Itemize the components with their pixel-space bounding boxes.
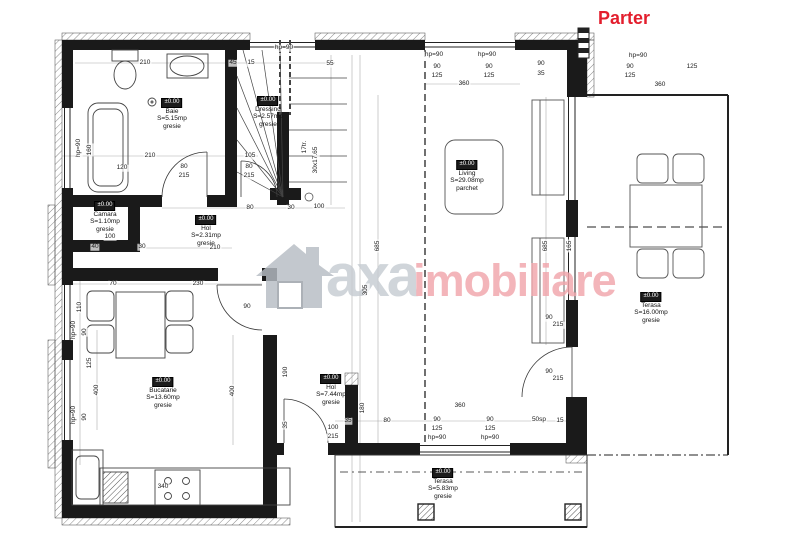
dimension-label: 45 <box>228 60 237 67</box>
dimension-label: 15 <box>246 60 255 67</box>
terrace-east <box>587 95 728 455</box>
dimension-label: 210 <box>209 245 222 252</box>
dimension-label: 90 <box>82 327 89 336</box>
dimension-label: 400 <box>230 385 237 398</box>
dimension-label: 125 <box>686 64 699 71</box>
dimension-label: 160 <box>87 144 94 157</box>
dimension-label: 100 <box>104 234 117 241</box>
dimension-label: hp=90 <box>477 52 497 59</box>
dimension-label: 215 <box>178 173 191 180</box>
dimension-label: 17tr. <box>302 140 309 155</box>
dimension-label: 90 <box>432 417 441 424</box>
dimension-label: 40 <box>90 244 99 251</box>
dimension-label: 215 <box>327 434 340 441</box>
level-badge: ±0.00 <box>196 215 217 225</box>
room-area: S=13.60mp <box>146 394 179 401</box>
room-area: S=2.57mp <box>253 113 283 120</box>
dimension-label: 360 <box>454 403 467 410</box>
dimension-label: hp=90 <box>76 138 83 158</box>
dimension-label: 80 <box>179 164 188 171</box>
dimension-label: 35 <box>536 71 545 78</box>
dimension-label: 90 <box>432 64 441 71</box>
bathroom-fixtures <box>88 50 208 192</box>
dimension-label: 90 <box>625 64 634 71</box>
floor-plan-page: axa imobiliare ±0.00 Baie S=5.15mp gresi… <box>0 0 800 546</box>
room-name: Living <box>459 170 476 177</box>
dimension-label: 35 <box>343 418 352 425</box>
room-finish: gresie <box>259 121 277 128</box>
dimension-label: hp=90 <box>274 45 294 52</box>
room-label-living: ±0.00 Living S=29.08mp parchet <box>450 160 483 192</box>
dimension-label: 125 <box>431 73 444 80</box>
dimension-label: 90 <box>485 417 494 424</box>
room-name: Terasa <box>433 478 453 485</box>
room-area: S=5.15mp <box>157 115 187 122</box>
floorplan-drawing <box>0 0 800 546</box>
room-area: S=2.31mp <box>191 232 221 239</box>
room-finish: gresie <box>163 123 181 130</box>
dimension-label: 360 <box>458 81 471 88</box>
dimension-label: 230 <box>192 281 205 288</box>
dimension-label: 215 <box>552 376 565 383</box>
dimension-label: 80 <box>382 418 391 425</box>
dimension-label: hp=90 <box>71 405 78 425</box>
dimension-label: 215 <box>243 173 256 180</box>
room-area: S=16.00mp <box>634 309 667 316</box>
scale-bar-icon <box>578 28 589 58</box>
room-finish: parchet <box>456 185 478 192</box>
level-badge: ±0.00 <box>457 160 478 170</box>
dimension-label: 125 <box>431 426 444 433</box>
dimension-label: 35 <box>283 420 290 429</box>
level-badge: ±0.00 <box>321 374 342 384</box>
dimension-label: 80 <box>245 205 254 212</box>
dimension-label: 55 <box>325 61 334 68</box>
room-label-camara: ±0.00 Camara S=1.10mp gresie <box>90 201 120 233</box>
level-badge: ±0.00 <box>258 96 279 106</box>
level-badge: ±0.00 <box>153 377 174 387</box>
dimension-label: 685 <box>375 240 382 253</box>
room-finish: gresie <box>322 399 340 406</box>
dimension-label: 215 <box>552 322 565 329</box>
dimension-label: hp=90 <box>424 52 444 59</box>
dimension-label: 110 <box>77 301 84 313</box>
room-label-hol: ±0.00 Hol S=7.44mp gresie <box>316 374 346 406</box>
room-finish: gresie <box>154 402 172 409</box>
dimension-label: 685 <box>543 240 550 253</box>
dimension-label: 360 <box>654 82 667 89</box>
room-name: Hol <box>326 384 336 391</box>
room-name: Baie <box>165 108 178 115</box>
dimension-label: 90 <box>536 61 545 68</box>
room-label-dressing: ±0.00 Dressing S=2.57mp gresie <box>253 96 283 128</box>
dimension-label: 50sp <box>531 417 547 424</box>
dimension-label: 30 <box>286 205 295 212</box>
plan-title: Parter <box>598 8 650 29</box>
dimension-label: 125 <box>483 73 496 80</box>
dimension-label: 30x17.65 <box>313 146 320 175</box>
dimension-label: 340 <box>157 484 170 491</box>
room-label-hol-mic: ±0.00 Hol S=2.31mp gresie <box>191 215 221 247</box>
dimension-label: 125 <box>624 73 637 80</box>
dimension-label: 30 <box>137 244 146 251</box>
room-label-bucatarie: ±0.00 Bucatarie S=13.60mp gresie <box>146 377 179 409</box>
dimension-label: hp=90 <box>71 320 78 340</box>
dimension-label: 105 <box>244 153 257 160</box>
dimension-label: 90 <box>82 412 89 421</box>
room-finish: gresie <box>434 493 452 500</box>
room-finish: gresie <box>96 226 114 233</box>
dimension-label: 90 <box>242 304 251 311</box>
dimension-label: 70 <box>108 281 117 288</box>
kitchen-furniture <box>72 291 290 505</box>
room-area: S=29.08mp <box>450 177 483 184</box>
room-finish: gresie <box>642 317 660 324</box>
dimension-label: 210 <box>144 153 157 160</box>
dimension-label: 120 <box>116 165 129 172</box>
room-label-terasa-sud: ±0.00 Terasa S=5.83mp gresie <box>428 468 458 500</box>
room-area: S=5.83mp <box>428 485 458 492</box>
dimension-label: 100 <box>327 425 340 432</box>
dimension-label: hp=90 <box>427 435 447 442</box>
axis-lines <box>340 50 728 472</box>
dimension-label: 165 <box>567 240 574 253</box>
level-badge: ±0.00 <box>95 201 116 211</box>
room-name: Dressing <box>255 106 281 113</box>
walls <box>62 40 587 518</box>
dimension-label: hp=90 <box>628 53 648 60</box>
level-badge: ±0.00 <box>641 292 662 302</box>
room-area: S=1.10mp <box>90 218 120 225</box>
room-name: Hol <box>201 225 211 232</box>
dimension-label: 15 <box>555 418 564 425</box>
dimension-label: 190 <box>283 366 290 379</box>
dimension-label: 125 <box>484 426 497 433</box>
dimension-label: 210 <box>139 60 152 67</box>
dimension-label: 125 <box>87 357 94 370</box>
dimension-label: 180 <box>360 402 367 415</box>
terrace-south <box>335 455 587 527</box>
room-name: Terasa <box>641 302 661 309</box>
dimension-label: hp=90 <box>480 435 500 442</box>
room-label-terasa-est: ±0.00 Terasa S=16.00mp gresie <box>634 292 667 324</box>
level-badge: ±0.00 <box>433 468 454 478</box>
room-name: Bucatarie <box>149 387 176 394</box>
level-badge: ±0.00 <box>162 98 183 108</box>
room-label-baie: ±0.00 Baie S=5.15mp gresie <box>157 98 187 130</box>
dimension-label: 100 <box>313 204 326 211</box>
room-name: Camara <box>93 211 116 218</box>
dimension-label: 90 <box>484 64 493 71</box>
dimension-label: 80 <box>244 164 253 171</box>
dimension-label: 400 <box>94 384 101 397</box>
room-area: S=7.44mp <box>316 391 346 398</box>
dimension-label: 305 <box>363 284 370 297</box>
